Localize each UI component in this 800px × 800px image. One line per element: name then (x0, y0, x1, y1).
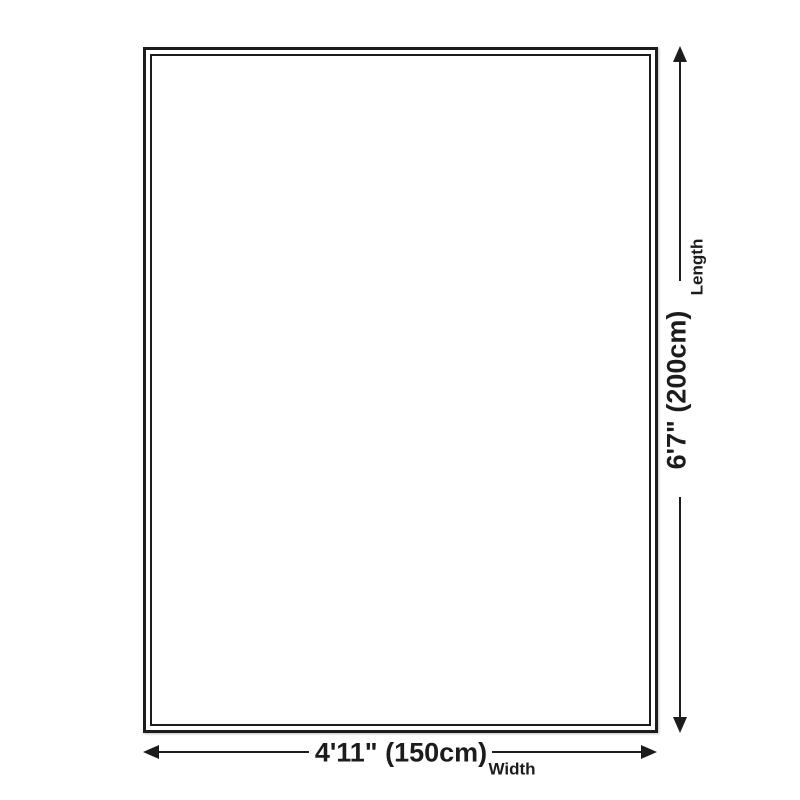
width-value-label: 4'11" (150cm) (315, 740, 487, 767)
length-dimension-line-bottom (679, 497, 681, 720)
length-dimension-line-top (679, 59, 681, 281)
length-axis-label: Length (689, 239, 706, 296)
rug-outline-outer (143, 47, 658, 733)
dimension-diagram: 6'7" (200cm) Length 4'11" (150cm) Width (0, 0, 800, 800)
width-axis-label: Width (488, 761, 535, 778)
length-value-label: 6'7" (200cm) (664, 311, 691, 470)
width-dimension-line-right (492, 751, 644, 753)
width-dimension-line-left (156, 751, 309, 753)
rug-outline-inner (150, 54, 651, 726)
arrow-right-icon (641, 745, 657, 759)
arrow-down-icon (673, 717, 687, 733)
